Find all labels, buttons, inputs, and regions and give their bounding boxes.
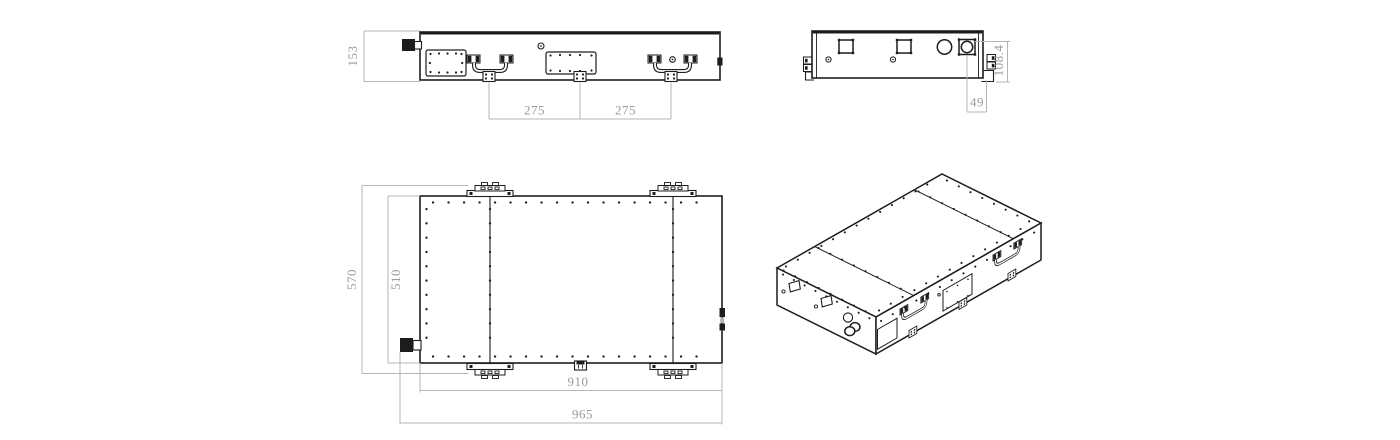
- square-connector-2: [896, 39, 912, 54]
- enclosure-plan-body: [420, 196, 722, 363]
- mounting-lug-bottom-left: [467, 364, 513, 379]
- drawing-sheet: 153: [0, 0, 1400, 440]
- mounting-lug-bottom-right: [650, 364, 696, 379]
- mounting-foot-2: [574, 72, 586, 82]
- plan-view: 570 510 910 965: [344, 183, 725, 425]
- iso-view: [777, 174, 1041, 354]
- side-nubs-plan: [720, 308, 726, 331]
- handle-left: [467, 55, 513, 71]
- side-nub-front: [717, 58, 722, 66]
- vent-hole: [538, 43, 544, 49]
- dim-plan-width-inner: 510: [388, 196, 420, 363]
- panel-screw-2: [890, 57, 895, 62]
- power-connector-front: [402, 39, 422, 51]
- drawing-canvas: 153: [0, 0, 1400, 440]
- square-connector-1: [838, 39, 854, 54]
- side-view: 108.4 49: [804, 31, 1011, 112]
- dim-foot-spans: 275 275: [489, 83, 671, 120]
- drain-plug: [575, 361, 587, 370]
- mounting-lug-top-right: [650, 183, 696, 197]
- round-connector: [937, 40, 951, 54]
- mounting-foot-3: [665, 72, 677, 82]
- dim-label-49: 49: [970, 95, 984, 110]
- mounting-lug-top-left: [467, 183, 513, 197]
- enclosure-side-body: [812, 31, 983, 78]
- dim-front-height: 153: [345, 31, 420, 82]
- access-plate-center: [546, 52, 596, 74]
- circular-connector-square-flange: [958, 38, 976, 55]
- front-view: 153: [345, 31, 723, 119]
- screw-rows: [427, 203, 712, 357]
- dim-label-965: 965: [572, 407, 593, 422]
- panel-screw-1: [826, 57, 831, 62]
- power-connector-plan: [400, 338, 421, 352]
- access-plate-left: [426, 50, 466, 76]
- mounting-foot-1: [483, 72, 495, 82]
- dim-label-108-4: 108.4: [991, 45, 1006, 77]
- dim-label-275-right: 275: [615, 103, 636, 118]
- dim-label-510: 510: [388, 269, 403, 290]
- dim-label-275-left: 275: [524, 103, 545, 118]
- handle-right: [648, 55, 697, 71]
- dim-label-570: 570: [344, 269, 359, 290]
- dim-label-153: 153: [345, 46, 360, 67]
- dim-side-height: 108.4: [975, 42, 1010, 83]
- dim-label-910: 910: [568, 374, 589, 389]
